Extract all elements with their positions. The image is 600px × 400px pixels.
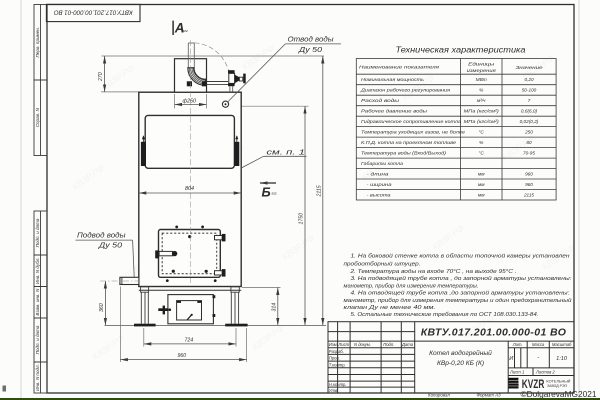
svg-text:960: 960 xyxy=(525,172,533,177)
svg-text:Расход воды: Расход воды xyxy=(361,98,400,104)
svg-text:мм: мм xyxy=(478,173,485,178)
svg-text:Подп. и дата: Подп. и дата xyxy=(35,325,40,354)
svg-text:КВЗР.РФ: КВЗР.РФ xyxy=(100,63,136,92)
svg-text:пробоотборный штуцер.: пробоотборный штуцер. xyxy=(344,261,421,268)
svg-text:ЗАВОД РЭП: ЗАВОД РЭП xyxy=(547,384,568,388)
svg-text:Температура воды (Вход/Выход): Температура воды (Вход/Выход) xyxy=(361,151,446,157)
svg-text:70-95: 70-95 xyxy=(523,151,535,156)
svg-text:3. На подводящей трубе котла ,: 3. На подводящей трубе котла , до запорн… xyxy=(351,275,573,282)
svg-text:КВЗР.РФ: КВЗР.РФ xyxy=(360,153,396,182)
svg-text:1. На боковой стенке котла в о: 1. На боковой стенке котла в области топ… xyxy=(351,252,570,259)
svg-text:КВЗР.РФ: КВЗР.РФ xyxy=(250,323,286,352)
svg-text:360: 360 xyxy=(99,303,105,312)
svg-text:0,20: 0,20 xyxy=(524,77,534,82)
svg-text:манометр, прибор для измерения: манометр, прибор для измерения температу… xyxy=(344,283,479,289)
svg-text:2115: 2115 xyxy=(523,192,534,197)
svg-text:- длина: - длина xyxy=(367,172,389,178)
svg-text:960: 960 xyxy=(178,353,187,359)
svg-text:°С: °С xyxy=(479,130,485,136)
svg-text:4. На отводящей трубе котла ,д: 4. На отводящей трубе котла ,до запорной… xyxy=(351,290,571,297)
svg-text:270: 270 xyxy=(98,72,104,82)
svg-text:%: % xyxy=(479,140,484,146)
svg-text:250: 250 xyxy=(524,130,533,135)
svg-text:измерения: измерения xyxy=(467,69,497,74)
svg-text:Подп.: Подп. xyxy=(383,342,394,347)
svg-text:см. п. 1: см. п. 1 xyxy=(266,150,305,157)
svg-text:©DolgarevaMG2021: ©DolgarevaMG2021 xyxy=(521,390,597,399)
svg-text:Отвод воды: Отвод воды xyxy=(288,36,335,44)
svg-text:0,02(0,2): 0,02(0,2) xyxy=(520,119,539,124)
svg-text:МВт: МВт xyxy=(476,77,487,83)
svg-text:80: 80 xyxy=(526,140,532,145)
svg-text:мм: мм xyxy=(478,193,485,198)
svg-text:- высота: - высота xyxy=(367,193,391,198)
svg-text:К.П.Д. котла на проектном топл: К.П.Д. котла на проектном топливе xyxy=(361,140,456,146)
svg-text:Гидравлическое сопротивление к: Гидравлическое сопротивление котла xyxy=(361,119,461,125)
svg-text:Подп. и дата: Подп. и дата xyxy=(35,218,40,247)
svg-text:КВЗР.РФ: КВЗР.РФ xyxy=(430,223,466,252)
svg-text:°С: °С xyxy=(479,151,485,157)
svg-text:Взам. инв. N: Взам. инв. N xyxy=(35,288,40,315)
svg-text:Изм.: Изм. xyxy=(329,342,338,347)
svg-text:ггг: ггг xyxy=(272,192,277,196)
svg-text:КВр-0,20 КБ (К): КВр-0,20 КБ (К) xyxy=(437,360,484,367)
svg-text:КВЗР.РФ: КВЗР.РФ xyxy=(280,233,316,262)
svg-text:0,6(6,0): 0,6(6,0) xyxy=(521,109,538,114)
svg-text:50-100: 50-100 xyxy=(522,88,537,93)
svg-text:клапан Ду не менее 40 мм.: клапан Ду не менее 40 мм. xyxy=(344,305,436,311)
svg-text:Ду 50: Ду 50 xyxy=(298,47,322,54)
svg-text:Справ. N: Справ. N xyxy=(35,107,40,127)
svg-text:МПа (кгс/см²): МПа (кгс/см²) xyxy=(464,109,499,115)
svg-text:1:10: 1:10 xyxy=(556,356,568,362)
svg-text:Т.контр.: Т.контр. xyxy=(329,362,346,367)
svg-text:804: 804 xyxy=(185,186,194,192)
svg-text:Масса: Масса xyxy=(532,342,545,347)
svg-text:Н.контр.: Н.контр. xyxy=(329,382,347,387)
svg-text:Температура уходящих газов, не: Температура уходящих газов, не более xyxy=(361,130,465,136)
svg-text:Рабочее давление воды: Рабочее давление воды xyxy=(361,109,428,115)
svg-text:Значение: Значение xyxy=(516,65,543,71)
svg-text:КВЗР.РФ: КВЗР.РФ xyxy=(70,163,106,192)
svg-text:Формат А3: Формат А3 xyxy=(477,392,502,397)
svg-text:314: 314 xyxy=(271,303,277,312)
svg-text:Утв.: Утв. xyxy=(329,388,339,393)
svg-text:Наименование показателя: Наименование показателя xyxy=(359,65,440,71)
svg-text:2115: 2115 xyxy=(316,185,322,197)
svg-text:Разраб.: Разраб. xyxy=(329,349,344,354)
svg-text:%: % xyxy=(479,88,484,94)
svg-text:1750: 1750 xyxy=(299,213,305,225)
svg-text:КВЗР.РФ: КВЗР.РФ xyxy=(90,333,126,362)
svg-text:Подвод воды: Подвод воды xyxy=(77,232,126,240)
svg-text:КВЗР.РФ: КВЗР.РФ xyxy=(240,43,276,72)
svg-text:Лист 1: Лист 1 xyxy=(509,369,524,374)
svg-text:Техническая характеристика: Техническая характеристика xyxy=(396,45,526,55)
svg-text:Единицы: Единицы xyxy=(468,62,495,68)
svg-text:Копировал: Копировал xyxy=(428,392,450,397)
svg-text:Ду 50: Ду 50 xyxy=(98,243,122,250)
svg-text:Масштаб: Масштаб xyxy=(552,342,572,347)
svg-text:м³/ч: м³/ч xyxy=(477,98,486,104)
svg-text:ф250: ф250 xyxy=(183,99,197,105)
svg-text:мм: мм xyxy=(478,183,485,188)
svg-text:Диапазон рабочего регулировани: Диапазон рабочего регулирования xyxy=(360,88,451,94)
svg-text:Перв. примен.: Перв. примен. xyxy=(35,27,40,58)
svg-text:-: - xyxy=(537,355,539,361)
svg-text:Габариты котла: Габариты котла xyxy=(361,161,403,167)
svg-text:ггг: ггг xyxy=(183,29,188,33)
svg-text:И: И xyxy=(509,356,513,362)
svg-text:КВТУ.017.201.00.000-01 ВО: КВТУ.017.201.00.000-01 ВО xyxy=(54,9,133,16)
svg-text:МПа (кгс/см²): МПа (кгс/см²) xyxy=(464,119,499,125)
svg-text:Листов 2: Листов 2 xyxy=(535,369,555,374)
svg-text:Котел водогрейный: Котел водогрейный xyxy=(429,349,492,357)
svg-text:N докум.: N докум. xyxy=(354,342,371,347)
svg-text:Инв. N дубл.: Инв. N дубл. xyxy=(35,257,40,284)
svg-text:Пров.: Пров. xyxy=(329,356,340,361)
svg-text:Б: Б xyxy=(262,184,271,199)
svg-text:960: 960 xyxy=(525,182,533,187)
svg-text:2. Температура воды на входе: 2. Температура воды на входе 70°С , на в… xyxy=(349,269,516,275)
svg-text:Дата: Дата xyxy=(401,342,414,347)
svg-text:5. Остальные технические требо: 5. Остальные технические требования по О… xyxy=(351,312,539,318)
svg-text:724: 724 xyxy=(185,338,194,344)
svg-text:манометр, прибор для измерения: манометр, прибор для измерения температу… xyxy=(344,297,572,304)
svg-text:Лист: Лист xyxy=(337,342,349,347)
svg-text:Лит.: Лит. xyxy=(512,342,523,347)
svg-text:Номинальная мощность: Номинальная мощность xyxy=(361,77,425,83)
svg-text:7: 7 xyxy=(528,98,531,103)
svg-text:- ширина: - ширина xyxy=(367,183,392,188)
svg-text:Инв. N подл.: Инв. N подл. xyxy=(35,364,40,391)
svg-text:КВТУ.017.201.00.000-01 ВО: КВТУ.017.201.00.000-01 ВО xyxy=(421,327,567,339)
svg-text:А: А xyxy=(174,20,185,35)
